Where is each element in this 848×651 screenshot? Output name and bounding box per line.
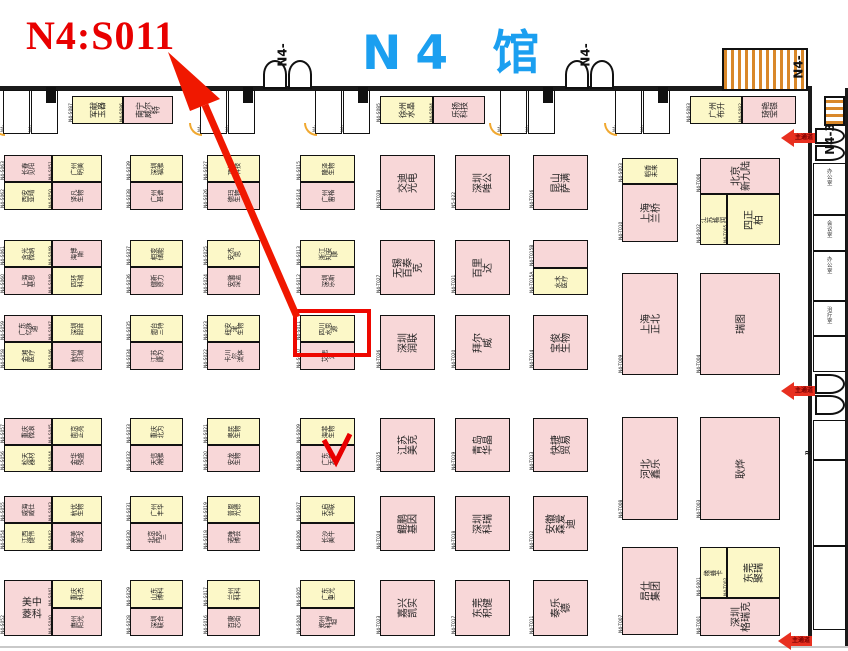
booth-id: N4-S006 [297, 530, 301, 549]
wall-room: N4- [3, 90, 30, 134]
booth-N4-S038[interactable]: N4-S038广州 甚谱 [130, 182, 183, 210]
booth-N4-S027[interactable]: N4-S027顶俐 科技 [207, 155, 260, 182]
booth-id: N4-S083 [687, 103, 691, 122]
right-corridor-wall [808, 88, 812, 648]
booth-name: 徐州 水晶 [400, 102, 416, 118]
booth-N4-S029[interactable]: N4-S029山东 博科 [130, 580, 183, 608]
booth-name: 深圳科瑞 [474, 511, 494, 536]
booth-id: N4-T001 [697, 616, 701, 634]
booth-id: N4-T013 [530, 452, 534, 470]
booth-id: N4-S037 [127, 246, 131, 265]
booth-name: 浙江 知安康 [319, 246, 338, 262]
booth-id: N4-S038 [127, 189, 131, 208]
booth-N4-S035[interactable]: N4-S035烟台 三特 [130, 315, 183, 342]
floor-plan: N4:S011 N4 馆 N4-S087军献 玉器N4-S086南宁 威尔特N4… [0, 0, 848, 651]
booth-id: N4-T016 [530, 190, 534, 208]
booth-name: 中科美菱 [19, 595, 39, 622]
booth-name: 江苏 格润 [701, 216, 727, 224]
booth-name: 泰乐德 [552, 596, 572, 621]
booth-N4-S044[interactable]: N4-S044金华 强盛 [52, 445, 102, 472]
booth-id: N4-S033 [127, 424, 131, 443]
office-room [813, 460, 846, 546]
room-id: N4- [226, 125, 231, 132]
booth-id: N4-S039 [127, 161, 131, 180]
booth-id: N4-S054 [1, 530, 5, 549]
booth-N4-S009[interactable]: N4-S009海菲 生物 [300, 418, 355, 445]
booth-N4-T007[interactable]: N4-T007昂仕集团 [622, 547, 678, 635]
booth-id: N4-T020 [452, 350, 456, 368]
booth-N4-S003[interactable]: N4-S003稻香 未来 [622, 158, 678, 184]
booth-name: 广东 天普 [323, 452, 336, 465]
booth-name: 顶俐 科技 [229, 162, 242, 175]
booth-name: 长春 见阳 [23, 162, 36, 175]
booth-id: N4-S021 [204, 424, 208, 443]
gate-label: N4-3 [823, 123, 837, 155]
booth-N4-S007[interactable]: N4-S007天启 华联 [300, 496, 355, 523]
booth-N4-T017[interactable]: N4-T017东莞积健 [455, 580, 510, 636]
booth-name: 深圳润联 [399, 330, 419, 355]
booth-name: 百康 芯街 [229, 616, 242, 629]
booth-id: N4-T019 [452, 452, 456, 470]
booth-name: 江苏美克 [399, 433, 419, 458]
booth-N4-T024[interactable]: N4-T024鲲鹏基因 [380, 496, 435, 551]
booth-id: N4-S063 [1, 161, 5, 180]
booth-id: N4-S035 [127, 321, 131, 340]
gate-label: N4- [276, 43, 290, 66]
booth-id: N4-S015 [297, 161, 301, 180]
booth-N4-S034[interactable]: N4-S034江苏 康为 [130, 342, 183, 370]
booth-id: N4-S060 [1, 274, 5, 293]
booth-name: 北京 新九陆 [732, 161, 752, 191]
main-aisle-arrow: 主通道 [778, 632, 812, 650]
booth-id: N4-S048 [49, 274, 53, 293]
booth-name: 四环 科瑞 [72, 275, 85, 288]
booth-N4-T019[interactable]: N4-T019青岛华晶 [455, 418, 510, 472]
wall-room: N4- [500, 90, 527, 134]
door-leaf-icon [358, 87, 368, 103]
booth-id: N4-S003 [619, 163, 623, 182]
booth-N4-S047[interactable]: N4-S047深圳 韶音 [52, 315, 102, 342]
booth-name: 江苏 康为 [152, 350, 165, 363]
booth-name: 松天 器材 [23, 452, 36, 465]
door-leaf-icon [658, 87, 668, 103]
booth-N4-T026[interactable]: N4-T026深圳润联 [380, 315, 435, 370]
booth-name: 乐扬 科技 [453, 102, 469, 118]
booth-name: 四正柏 [745, 208, 765, 232]
booth-id: N4-S026 [204, 189, 208, 208]
booth-id: N4-T027 [377, 275, 381, 293]
booth-N4-T020[interactable]: N4-T020拜尔威 [455, 315, 510, 370]
booth-N4-S019[interactable]: N4-S019普恩 光德 [207, 496, 260, 523]
booth-name: 上海 基恩 [23, 275, 36, 288]
booth-name: 耿烨 [737, 459, 747, 479]
booth-id: N4-S044 [49, 451, 53, 470]
booth-id: N4-S062 [1, 189, 5, 208]
booth-N4-S026[interactable]: N4-S026德玛 生物 [207, 182, 260, 210]
room-label: 办公室 [826, 256, 833, 274]
gate-label: N4- [579, 43, 593, 66]
booth-id: N4-S022 [204, 349, 208, 368]
booth-N4-S060[interactable]: N4-S060上海 基恩 [4, 267, 52, 295]
booth-N4-S085[interactable]: N4-S085徐州 水晶 [380, 96, 433, 124]
booth-N4-S082[interactable]: N4-S082琦艳 宝银 [742, 96, 796, 124]
booth-N4-T003[interactable]: N4-T003耿烨 [700, 417, 780, 520]
booth-N4-S051[interactable]: N4-S051广州 明美 [52, 155, 102, 182]
booth-id: N4-S027 [204, 161, 208, 180]
booth-id: N4-S041 [49, 587, 53, 606]
booth-N4-S020[interactable]: N4-S020安龙 生物 [207, 445, 260, 472]
booth-id: N4-T015B [530, 245, 534, 266]
booth-id: N4-T018 [452, 531, 456, 549]
booth-N4-S049[interactable]: N4-S049海博 斯 [52, 240, 102, 267]
booth-N4-S014[interactable]: N4-S014广州 雷格 [300, 182, 355, 210]
booth-id: N4-T006 [697, 174, 701, 192]
booth-name: 海博 斯 [72, 247, 85, 260]
booth-N4-T016[interactable]: N4-T016昆山萨满 [533, 155, 588, 210]
booth-N4-T005[interactable]: N4-T005四正柏 [727, 194, 780, 245]
booth-id: N4-T004 [697, 355, 701, 373]
booth-N4-S024[interactable]: N4-S024安徽 深蓝 [207, 267, 260, 295]
booth-id: N4-S025 [204, 246, 208, 265]
booth-id: N4-S086 [120, 103, 124, 122]
booth-name: 上海正北 [642, 311, 662, 336]
booth-name: 百里达 [474, 255, 494, 280]
booth-id: N4-S020 [204, 451, 208, 470]
booth-name: 鲲鹏基因 [399, 511, 419, 536]
booth-id: N4-T024 [377, 531, 381, 549]
booth-N4-T010[interactable]: N4-T010上海兰桥 [622, 184, 678, 242]
door-arc-icon [304, 123, 317, 136]
booth-N4-S084[interactable]: N4-S084乐扬 科技 [433, 96, 485, 124]
booth-id: N4-T021 [452, 275, 456, 293]
booth-name: 嘉兴凯实 [399, 596, 419, 621]
booth-N4-S025[interactable]: N4-S025安杰思 [207, 240, 260, 267]
door-arc-icon [189, 123, 202, 136]
booth-id: N4-S018 [204, 530, 208, 549]
booth-N4-S005[interactable]: N4-S005广东 重光 [300, 580, 355, 608]
booth-N4-S039[interactable]: N4-S039深圳 福雅 [130, 155, 183, 182]
booth-N4-S032[interactable]: N4-S032天信 潮雅 [130, 445, 183, 472]
booth-id: N4-S028 [127, 615, 131, 634]
booth-name: 烟台 三特 [152, 322, 165, 335]
booth-N4-T027[interactable]: N4-T027无锡百泰克 [380, 240, 435, 295]
booth-id: N4-T028 [377, 190, 381, 208]
booth-N4-S040[interactable]: N4-S040惠州 阳光 [52, 608, 102, 636]
wall-room: N4- [31, 90, 58, 134]
booth-N4-S028[interactable]: N4-S028深圳 联合 [130, 608, 183, 636]
booth-name: 深圳 乐斯 [323, 275, 336, 288]
booth-id: N4-S082 [739, 103, 743, 122]
booth-name: 广州 雷格 [323, 190, 336, 203]
booth-name: 郑州 科睿坦 [319, 614, 338, 630]
booth-N4-T018[interactable]: N4-T018深圳科瑞 [455, 496, 510, 551]
booth-name: 深圳唯公 [474, 170, 494, 195]
booth-id: N4-S030 [127, 530, 131, 549]
booth-N4-S023[interactable]: N4-S023纽安津 生物 [207, 315, 260, 342]
booth-N4-S061[interactable]: N4-S061含光 微纳 [4, 240, 52, 267]
booth-name: 含光 微纳 [23, 247, 36, 260]
booth-id: N4-S016 [204, 615, 208, 634]
booth-id: N4-S059 [1, 321, 5, 340]
room-id: N4- [341, 125, 346, 132]
booth-N4-S086[interactable]: N4-S086南宁 威尔特 [123, 96, 173, 124]
room-id: N4- [526, 125, 531, 132]
booth-N4-S030[interactable]: N4-S030北京 西克兰 [130, 523, 183, 551]
booth-name: 交迪 光电 [399, 170, 419, 195]
booth-id: N4-S085 [377, 103, 381, 122]
booth-N4-S052[interactable]: N4-S052中科美菱 [4, 580, 52, 636]
stairs-icon-small [824, 96, 845, 126]
bottom-edge [0, 646, 848, 648]
booth-name: 广州 明美 [72, 162, 85, 175]
booth-id: N4-S034 [127, 349, 131, 368]
door-leaf-icon [46, 87, 56, 103]
door-leaf-icon [543, 87, 553, 103]
booth-N4-S056[interactable]: N4-S056松天 器材 [4, 445, 52, 472]
booth-id: N4-S009 [297, 424, 301, 443]
booth-N4-T015A[interactable]: N4-T015A水木 医疗 [533, 268, 588, 295]
booth-name: 诺唯 博芸 [229, 531, 242, 544]
booth-N4-T013[interactable]: N4-T013快捷贸易 [533, 418, 588, 472]
booth-name: 长沙 美牛 [323, 531, 336, 544]
booth-id: N4-S019 [204, 502, 208, 521]
booth-N4-S087[interactable]: N4-S087军献 玉器 [72, 96, 123, 124]
booth-N4-S016[interactable]: N4-S016百康 芯街 [207, 608, 260, 636]
booth-name: 广东 重光 [323, 588, 336, 601]
booth-id: N4-T014 [530, 350, 534, 368]
booth-N4-S083[interactable]: N4-S083广州 布升 [690, 96, 742, 124]
booth-id: N4-S052 [1, 615, 5, 634]
booth-name: 宝俊生物 [552, 330, 572, 355]
booth-N4-S057[interactable]: N4-S057重庆 微浪 [4, 418, 52, 445]
top-wall [0, 86, 812, 91]
booth-id: N4-S055 [1, 502, 5, 521]
booth-id: N4-S007 [297, 502, 301, 521]
booth-N4-S058[interactable]: N4-S058金湘 医疗 [4, 342, 52, 370]
booth-N4-T014[interactable]: N4-T014宝俊生物 [533, 315, 588, 370]
booth-id: N4-S031 [127, 502, 131, 521]
booth-N4-S033[interactable]: N4-S033重庆 北为 [130, 418, 183, 445]
booth-id: N4-S036 [127, 274, 131, 293]
booth-name: 南宁 威尔特 [137, 101, 161, 119]
booth-name: 广州 甚谱 [152, 190, 165, 203]
booth-name: 安徽 深蓝 [229, 275, 242, 288]
room-id: N4- [29, 125, 34, 132]
booth-name: 奥民 生物 [229, 425, 242, 438]
booth-name: 译凡 生物 [72, 190, 85, 203]
booth-id: N4-S032 [127, 451, 131, 470]
booth-N4-S018[interactable]: N4-S018诺唯 博芸 [207, 523, 260, 551]
booth-N4-S012[interactable]: N4-S012深圳 乐斯 [300, 267, 355, 295]
booth-name: 青岛华晶 [474, 433, 494, 458]
booth-N4-S041[interactable]: N4-S041重庆 科杰 [52, 580, 102, 608]
booth-id: N4-S002 [697, 224, 701, 243]
main-aisle-arrow: 主通道 [781, 129, 815, 147]
booth-N4-S062[interactable]: N4-S062西安 亚晴 [4, 182, 52, 210]
booth-id: N4-T026 [377, 350, 381, 368]
booth-N4-T028[interactable]: N4-T028交迪 光电 [380, 155, 435, 210]
office-room [813, 546, 846, 630]
booth-name: 上海兰桥 [642, 200, 662, 225]
main-aisle-arrow: 主通道 [781, 382, 815, 400]
booth-name: 广东 亿脉通 [20, 322, 39, 336]
booth-name: 深圳 联合 [152, 616, 165, 629]
booth-id: N4-S049 [49, 246, 53, 265]
office-room: 办公室 [813, 251, 846, 301]
booth-name: 健新 原力 [152, 275, 165, 288]
booth-N4-T001[interactable]: N4-T001深圳 格瑞克 [700, 598, 780, 636]
booth-N4-S059[interactable]: N4-S059广东 亿脉通 [4, 315, 52, 342]
booth-name: 琦艳 宝银 [763, 102, 779, 118]
booth-name: 威海 威仕 [23, 503, 36, 516]
booth-N4-S015[interactable]: N4-S015隆泽 生物 [300, 155, 355, 182]
booth-id: N4-S046 [49, 349, 53, 368]
booth-name: 隆泽 生物 [323, 162, 336, 175]
booth-name: 东莞聚瑞 [745, 561, 765, 585]
booth-name: 杭州 贝瑞 [72, 350, 85, 363]
door-arc-icon [0, 123, 5, 136]
office-room [813, 336, 846, 372]
room-label: 治疗室 [826, 306, 833, 324]
booth-id: N4-S056 [1, 451, 5, 470]
booth-name: 无锡百泰克 [394, 255, 424, 280]
booth-id: N4-S061 [1, 246, 5, 265]
booth-N4-T025[interactable]: N4-T025江苏美克 [380, 418, 435, 472]
booth-N4-S050[interactable]: N4-S050译凡 生物 [52, 182, 102, 210]
room-id: N4- [641, 125, 646, 132]
booth-name: 杭优 生物 [72, 503, 85, 516]
booth-N4-S013[interactable]: N4-S013浙江 知安康 [300, 240, 355, 267]
booth-N4-T023[interactable]: N4-T023嘉兴凯实 [380, 580, 435, 636]
booth-name: 普恩 光德 [229, 503, 242, 516]
booth-N4-T011[interactable]: N4-T011泰乐德 [533, 580, 588, 636]
booth-name: 兰州 科科 [229, 588, 242, 601]
aisle-label: 主通道 [793, 386, 815, 396]
booth-N4-T008[interactable]: N4-T008河北鑫乐 [622, 417, 678, 520]
booth-N4-S048[interactable]: N4-S048四环 科瑞 [52, 267, 102, 295]
office-room: 会议室 [813, 215, 846, 251]
booth-name: 重庆 微浪 [23, 425, 36, 438]
booth-N4-S055[interactable]: N4-S055威海 威仕 [4, 496, 52, 523]
booth-id: N4-T008 [619, 500, 623, 518]
booth-id: N4-S047 [49, 321, 53, 340]
booth-N4-S063[interactable]: N4-S063长春 见阳 [4, 155, 52, 182]
booth-name: 深圳 福雅 [152, 162, 165, 175]
wall-room: N4- [315, 90, 342, 134]
booth-N4-S006[interactable]: N4-S006长沙 美牛 [300, 523, 355, 551]
booth-id: N4-S087 [69, 103, 73, 122]
booth-name: 安龙 生物 [229, 452, 242, 465]
booth-N4-S043[interactable]: N4-S043杭优 生物 [52, 496, 102, 523]
door-arc-icon [604, 123, 617, 136]
booth-name: 金湘 医疗 [23, 350, 36, 363]
booth-id: N4-S012 [297, 274, 301, 293]
booth-id: N4-S058 [1, 349, 5, 368]
booth-N4-S046[interactable]: N4-S046杭州 贝瑞 [52, 342, 102, 370]
booth-N4-S017[interactable]: N4-S017兰州 科科 [207, 580, 260, 608]
booth-id: N4-T003 [697, 500, 701, 518]
booth-name: 水木 医疗 [556, 275, 569, 288]
booth-id: N4-T005 [724, 225, 728, 243]
booth-name: 江西 健伟 [23, 531, 36, 544]
booth-N4-S054[interactable]: N4-S054江西 健伟 [4, 523, 52, 551]
wall-room: N4- [228, 90, 255, 134]
booth-name: 纽安津 生物 [225, 321, 244, 336]
booth-name: 北京 西克兰 [148, 529, 167, 544]
booth-N4-T021[interactable]: N4-T021百里达 [455, 240, 510, 295]
booth-name: 山东 博科 [152, 588, 165, 601]
booth-N4-S008[interactable]: N4-S008广东 天普 [300, 445, 355, 472]
booth-name: 广州 丰华 [152, 503, 165, 516]
wall-room: N4- [615, 90, 642, 134]
booth-N4-S022[interactable]: N4-S022卡川尔 流体 [207, 342, 260, 370]
aisle-label: 主通道 [793, 133, 815, 143]
booth-id: N4-T011 [530, 616, 534, 634]
booth-N4-S004[interactable]: N4-S004郑州 科睿坦 [300, 608, 355, 636]
booth-N4-S031[interactable]: N4-S031广州 丰华 [130, 496, 183, 523]
booth-name: 安徽森爱迪 [547, 511, 577, 536]
booth-name: 拜尔威 [474, 330, 494, 355]
booth-id: N4-S013 [297, 246, 301, 265]
booth-id: N4-T015A [530, 272, 534, 293]
booth-N4-S036[interactable]: N4-S036健新 原力 [130, 267, 183, 295]
booth-name: 天启 华联 [323, 503, 336, 516]
booth-N4-S021[interactable]: N4-S021奥民 生物 [207, 418, 260, 445]
booth-name: 安杰思 [229, 246, 242, 261]
booth-name: 天信 潮雅 [152, 452, 165, 465]
booth-N4-S042[interactable]: N4-S042亮美 泰戈 [52, 523, 102, 551]
booth-name: 深圳 韶音 [72, 322, 85, 335]
booth-id: N4-S008 [297, 451, 301, 470]
booth-id: N4-S005 [297, 587, 301, 606]
booth-id: N4-T002 [724, 578, 728, 596]
booth-N4-T009[interactable]: N4-T009上海正北 [622, 273, 678, 375]
booth-id: N4-S043 [49, 502, 53, 521]
booth-id: N4-S045 [49, 424, 53, 443]
office-room [813, 420, 846, 460]
booth-name: 西安 亚晴 [23, 190, 36, 203]
booth-name: 金华 强盛 [72, 452, 85, 465]
booth-N4-T006[interactable]: N4-T006北京 新九陆 [700, 158, 780, 194]
booth-name: 相变 储能 [152, 247, 165, 260]
booth-N4-T012[interactable]: N4-T012安徽森爱迪 [533, 496, 588, 551]
booth-id: N4-T007 [619, 615, 623, 633]
booth-name: 深圳 格瑞克 [732, 602, 752, 632]
booth-id: N4-S051 [49, 161, 53, 180]
booth-N4-S037[interactable]: N4-S037相变 储能 [130, 240, 183, 267]
headline-booth-callout: N4:S011 [26, 12, 175, 59]
booth-id: N4-S050 [49, 189, 53, 208]
booth-name: 广州 布升 [710, 102, 726, 118]
booth-id: N4-T017 [452, 616, 456, 634]
booth-N4-S045[interactable]: N4-S045南京 正亮 [52, 418, 102, 445]
booth-name: 稻香 未来 [645, 165, 658, 178]
booth-N4-T002[interactable]: N4-T002东莞聚瑞 [727, 547, 780, 598]
booth-id: N4-S084 [430, 103, 434, 122]
booth-N4-T004[interactable]: N4-T004瑞图 [700, 273, 780, 375]
booth-N5-022[interactable]: N5-022深圳唯公 [455, 155, 510, 210]
door-arc-icon [489, 123, 502, 136]
booth-id: N4-S024 [204, 274, 208, 293]
booth-id: N4-S014 [297, 189, 301, 208]
office-room: 办公室 [813, 163, 846, 215]
aisle-label: 主通道 [790, 636, 812, 646]
booth-name: 重庆 科杰 [72, 588, 85, 601]
booth-name: 军献 玉器 [91, 102, 107, 118]
booth-N4-T015B[interactable]: N4-T015B [533, 240, 588, 268]
room-label: 办公室 [826, 168, 833, 186]
booth-name: 惠州 阳光 [72, 616, 85, 629]
